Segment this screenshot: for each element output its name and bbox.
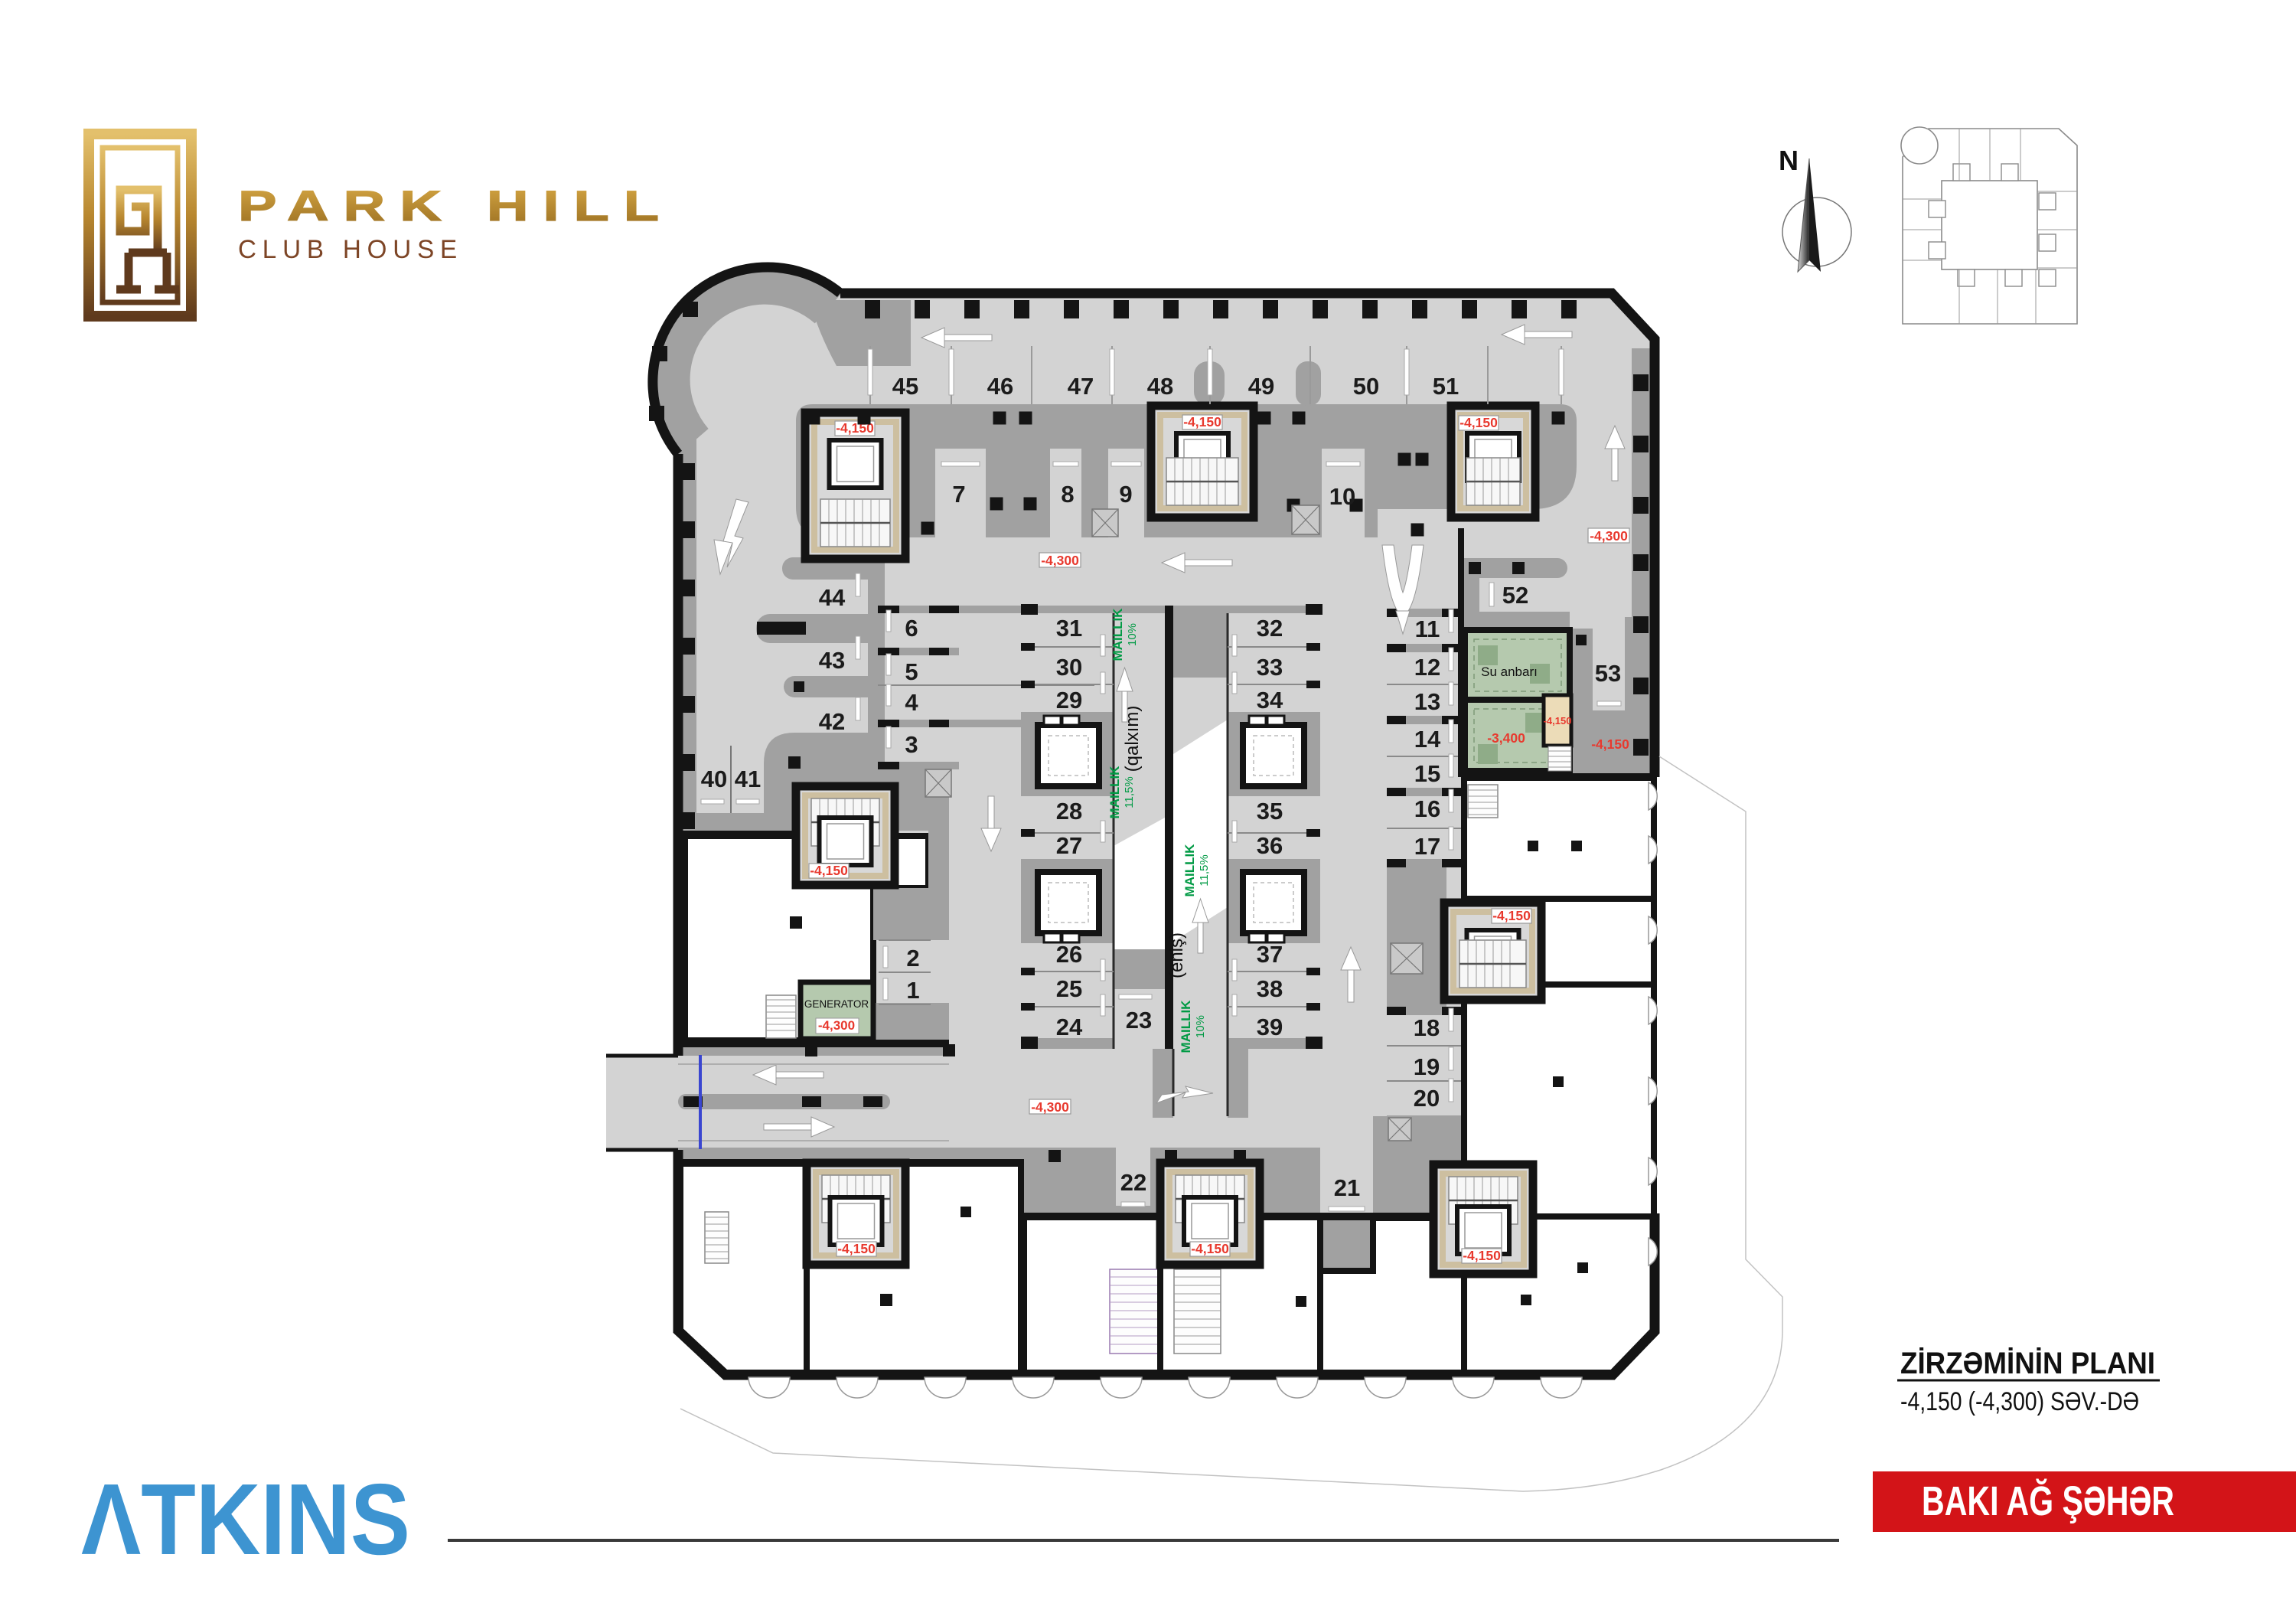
svg-text:33: 33: [1257, 654, 1283, 681]
svg-text:47: 47: [1068, 373, 1094, 400]
svg-text:N: N: [1779, 145, 1799, 176]
svg-text:38: 38: [1257, 975, 1283, 1002]
svg-text:24: 24: [1056, 1014, 1083, 1040]
svg-text:16: 16: [1414, 795, 1440, 822]
svg-text:Su anbarı: Su anbarı: [1481, 665, 1538, 679]
svg-text:51: 51: [1433, 373, 1459, 400]
svg-text:34: 34: [1257, 687, 1283, 714]
svg-text:41: 41: [735, 766, 761, 792]
svg-text:2: 2: [906, 945, 919, 972]
svg-text:14: 14: [1414, 726, 1441, 753]
svg-text:13: 13: [1414, 688, 1440, 715]
svg-text:39: 39: [1257, 1014, 1283, 1040]
svg-text:-4,150: -4,150: [1463, 1248, 1501, 1263]
svg-text:21: 21: [1334, 1174, 1360, 1201]
svg-text:-4,150: -4,150: [1492, 908, 1531, 923]
svg-text:23: 23: [1126, 1007, 1152, 1034]
svg-text:12: 12: [1414, 654, 1440, 681]
svg-text:11,5%: 11,5%: [1198, 854, 1211, 886]
svg-text:46: 46: [987, 373, 1013, 400]
svg-text:-4,150: -4,150: [1591, 736, 1629, 752]
svg-text:44: 44: [819, 584, 846, 611]
svg-text:29: 29: [1056, 687, 1082, 714]
svg-text:MAILLIK: MAILLIK: [1182, 844, 1197, 897]
svg-text:MAILLIK: MAILLIK: [1179, 1000, 1193, 1053]
svg-text:26: 26: [1056, 941, 1082, 968]
svg-text:53: 53: [1595, 660, 1621, 687]
svg-text:25: 25: [1056, 975, 1082, 1002]
svg-text:-4,300: -4,300: [818, 1018, 855, 1033]
svg-text:36: 36: [1257, 832, 1283, 859]
svg-text:30: 30: [1056, 654, 1082, 681]
svg-text:31: 31: [1056, 615, 1082, 642]
svg-text:10: 10: [1329, 483, 1355, 510]
svg-text:-4,150: -4,150: [810, 863, 848, 878]
svg-text:8: 8: [1061, 481, 1074, 508]
svg-text:3: 3: [905, 731, 918, 758]
svg-text:40: 40: [701, 766, 727, 792]
svg-text:45: 45: [892, 373, 918, 400]
svg-text:6: 6: [905, 615, 918, 642]
svg-text:42: 42: [819, 708, 845, 735]
svg-text:MAILLIK: MAILLIK: [1107, 766, 1122, 819]
svg-text:48: 48: [1147, 373, 1173, 400]
svg-text:7: 7: [952, 481, 965, 508]
svg-text:GENERATOR: GENERATOR: [804, 998, 869, 1010]
svg-text:28: 28: [1056, 798, 1082, 825]
svg-text:27: 27: [1056, 832, 1082, 859]
svg-text:50: 50: [1353, 373, 1379, 400]
svg-text:-4,300: -4,300: [1031, 1099, 1069, 1115]
svg-text:11: 11: [1415, 616, 1440, 642]
svg-text:17: 17: [1414, 833, 1440, 860]
svg-text:MAILLIK: MAILLIK: [1110, 608, 1125, 661]
svg-text:PARK HILL: PARK HILL: [238, 181, 673, 230]
svg-text:CLUB HOUSE: CLUB HOUSE: [238, 235, 463, 264]
svg-text:-4,150 (-4,300) SƏV.-DƏ: -4,150 (-4,300) SƏV.-DƏ: [1900, 1387, 2139, 1416]
svg-text:52: 52: [1502, 582, 1528, 609]
svg-text:18: 18: [1414, 1014, 1440, 1041]
svg-text:15: 15: [1414, 760, 1440, 787]
svg-text:-4,300: -4,300: [1041, 553, 1079, 568]
svg-text:43: 43: [819, 647, 845, 674]
svg-text:-4,150: -4,150: [1183, 414, 1221, 429]
svg-text:ΛTKINS: ΛTKINS: [81, 1463, 410, 1576]
svg-text:35: 35: [1257, 798, 1283, 825]
svg-text:4: 4: [905, 689, 918, 716]
svg-text:-3,400: -3,400: [1487, 730, 1525, 746]
svg-text:20: 20: [1414, 1085, 1440, 1112]
svg-text:ZİRZƏMİNİN PLANI: ZİRZƏMİNİN PLANI: [1900, 1347, 2155, 1380]
svg-text:BAKI AĞ ŞƏHƏR: BAKI AĞ ŞƏHƏR: [1922, 1478, 2174, 1524]
svg-text:9: 9: [1119, 481, 1132, 508]
svg-text:-4,150: -4,150: [1191, 1241, 1229, 1256]
svg-text:37: 37: [1257, 941, 1283, 968]
svg-text:10%: 10%: [1194, 1015, 1207, 1038]
svg-text:22: 22: [1120, 1169, 1146, 1196]
svg-text:11,5%: 11,5%: [1123, 776, 1136, 808]
svg-text:19: 19: [1414, 1053, 1440, 1080]
svg-text:-4,150: -4,150: [1459, 415, 1498, 430]
svg-text:-4,300: -4,300: [1590, 528, 1628, 544]
svg-text:-4,150: -4,150: [837, 1241, 876, 1256]
svg-text:-4,150: -4,150: [1544, 715, 1572, 727]
svg-text:(eniş): (eniş): [1166, 932, 1187, 978]
svg-text:5: 5: [905, 658, 918, 685]
svg-text:32: 32: [1257, 615, 1283, 642]
svg-text:1: 1: [906, 977, 919, 1004]
svg-text:10%: 10%: [1126, 623, 1139, 646]
svg-text:49: 49: [1248, 373, 1274, 400]
